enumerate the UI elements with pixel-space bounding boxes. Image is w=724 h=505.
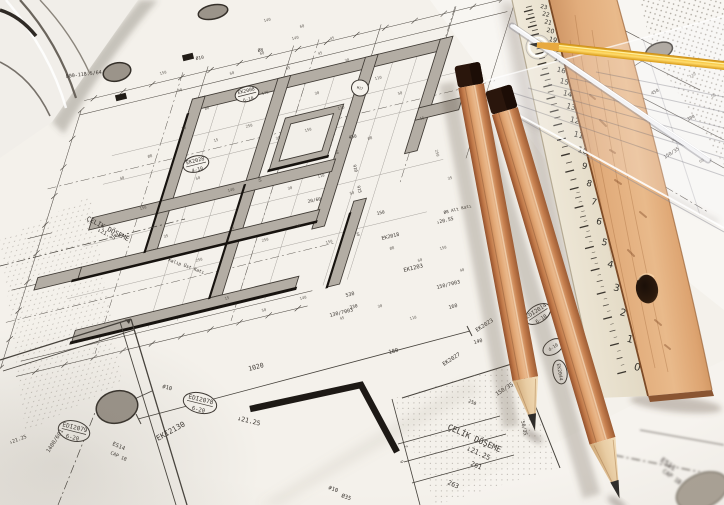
blueprint-photo-svg: EDI20786-20EDI20796-20EDI20146-10d-10EK2… <box>0 0 724 505</box>
photo-architectural-blueprints: EDI20786-20EDI20796-20EDI20146-10d-10EK2… <box>0 0 724 505</box>
